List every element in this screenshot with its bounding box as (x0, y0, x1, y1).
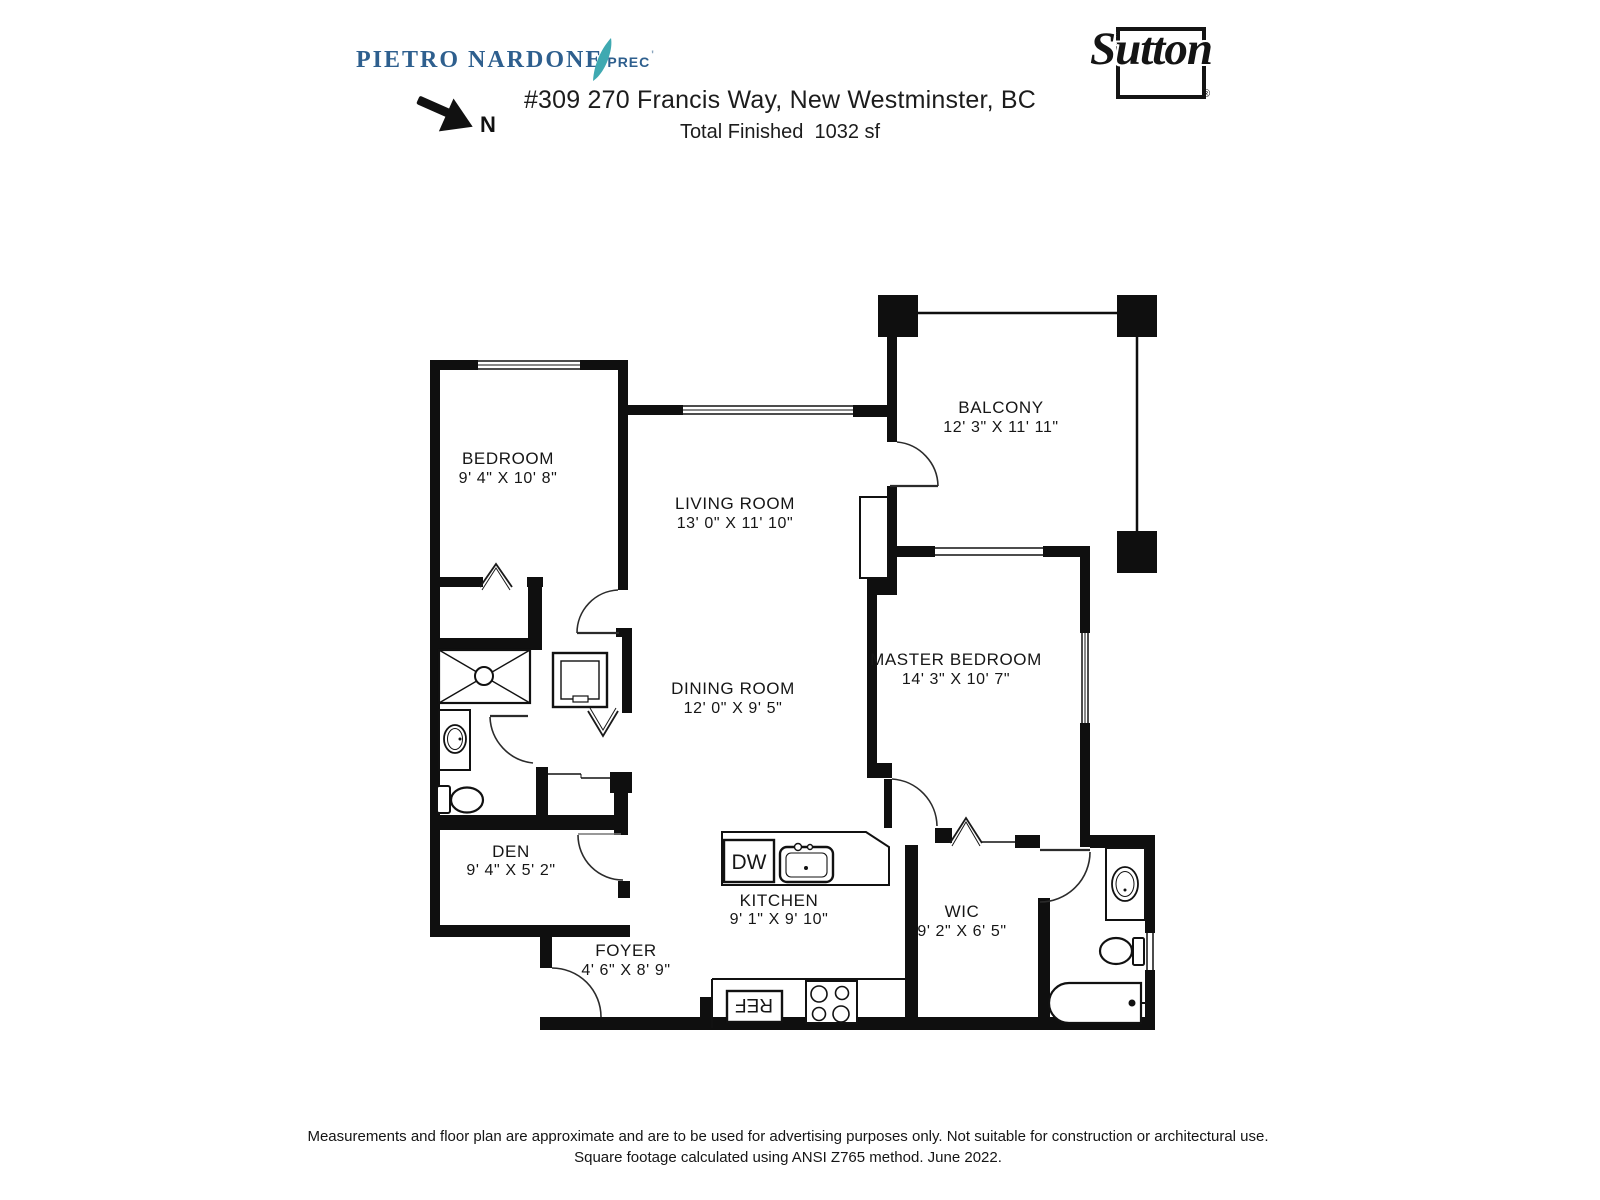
north-label: N (480, 112, 496, 137)
room-label-den: DEN (492, 842, 530, 861)
room-dims-den: 9' 4" X 5' 2" (466, 862, 555, 879)
kitchen-sink (780, 844, 833, 883)
room-label-living-room: LIVING ROOM (675, 494, 795, 513)
stove (806, 981, 857, 1023)
ensuite-vanity-sink (1106, 848, 1145, 920)
dishwasher-label: DW (732, 851, 767, 874)
room-dims-foyer: 4' 6" X 8' 9" (581, 962, 670, 979)
master-closet-bifold (950, 818, 982, 846)
bedroom-window (478, 360, 580, 370)
room-dims-wic: 9' 2" X 6' 5" (917, 923, 1006, 940)
room-dims-living-room: 13' 0" X 11' 10" (677, 515, 794, 532)
disclaimer-line1: Measurements and floor plan are approxim… (0, 1126, 1576, 1147)
laundry-closet-bifold (588, 708, 618, 736)
ensuite-door (1040, 850, 1090, 902)
ensuite-window (1145, 933, 1155, 970)
room-dims-bedroom: 9' 4" X 10' 8" (459, 470, 558, 487)
floorplan-page: PIETRO NARDONEPREC' #309 270 Francis Way… (0, 0, 1600, 1200)
room-dims-kitchen: 9' 1" X 9' 10" (730, 911, 829, 928)
bathroom-door (490, 716, 533, 763)
toilet (437, 786, 483, 813)
refrigerator-label: REF (735, 994, 773, 1015)
room-label-kitchen: KITCHEN (740, 891, 819, 910)
disclaimer: Measurements and floor plan are approxim… (0, 1126, 1576, 1168)
room-label-bedroom: BEDROOM (462, 449, 554, 468)
room-labels: BEDROOM 9' 4" X 10' 8" LIVING ROOM 13' 0… (459, 398, 1059, 1015)
living-room-niche (860, 497, 888, 578)
den-door (578, 834, 623, 880)
bathtub (1049, 983, 1147, 1023)
master-bedroom-door (884, 779, 937, 828)
room-label-foyer: FOYER (595, 941, 657, 960)
room-dims-master-bedroom: 14' 3" X 10' 7" (902, 671, 1010, 688)
bedroom-door (577, 590, 619, 633)
ensuite-toilet (1100, 938, 1144, 965)
master-bedroom-top-window (935, 546, 1043, 557)
shower (439, 650, 530, 703)
room-label-balcony: BALCONY (958, 398, 1043, 417)
bathroom-vanity-sink (439, 710, 470, 770)
master-bedroom-side-window (1080, 633, 1090, 723)
living-room-window (683, 405, 853, 415)
bedroom-closet-bifold (480, 564, 512, 590)
balcony-door (890, 442, 938, 486)
room-dims-balcony: 12' 3" X 11' 11" (943, 419, 1058, 436)
north-arrow-icon: N (410, 85, 496, 143)
washer-dryer (553, 653, 607, 707)
room-label-wic: WIC (945, 902, 980, 921)
room-label-master-bedroom: MASTER BEDROOM (870, 650, 1042, 669)
disclaimer-line2: Square footage calculated using ANSI Z76… (0, 1147, 1576, 1168)
room-label-dining-room: DINING ROOM (671, 679, 795, 698)
room-dims-dining-room: 12' 0" X 9' 5" (684, 700, 783, 717)
floor-plan-canvas: N (0, 0, 1600, 1200)
